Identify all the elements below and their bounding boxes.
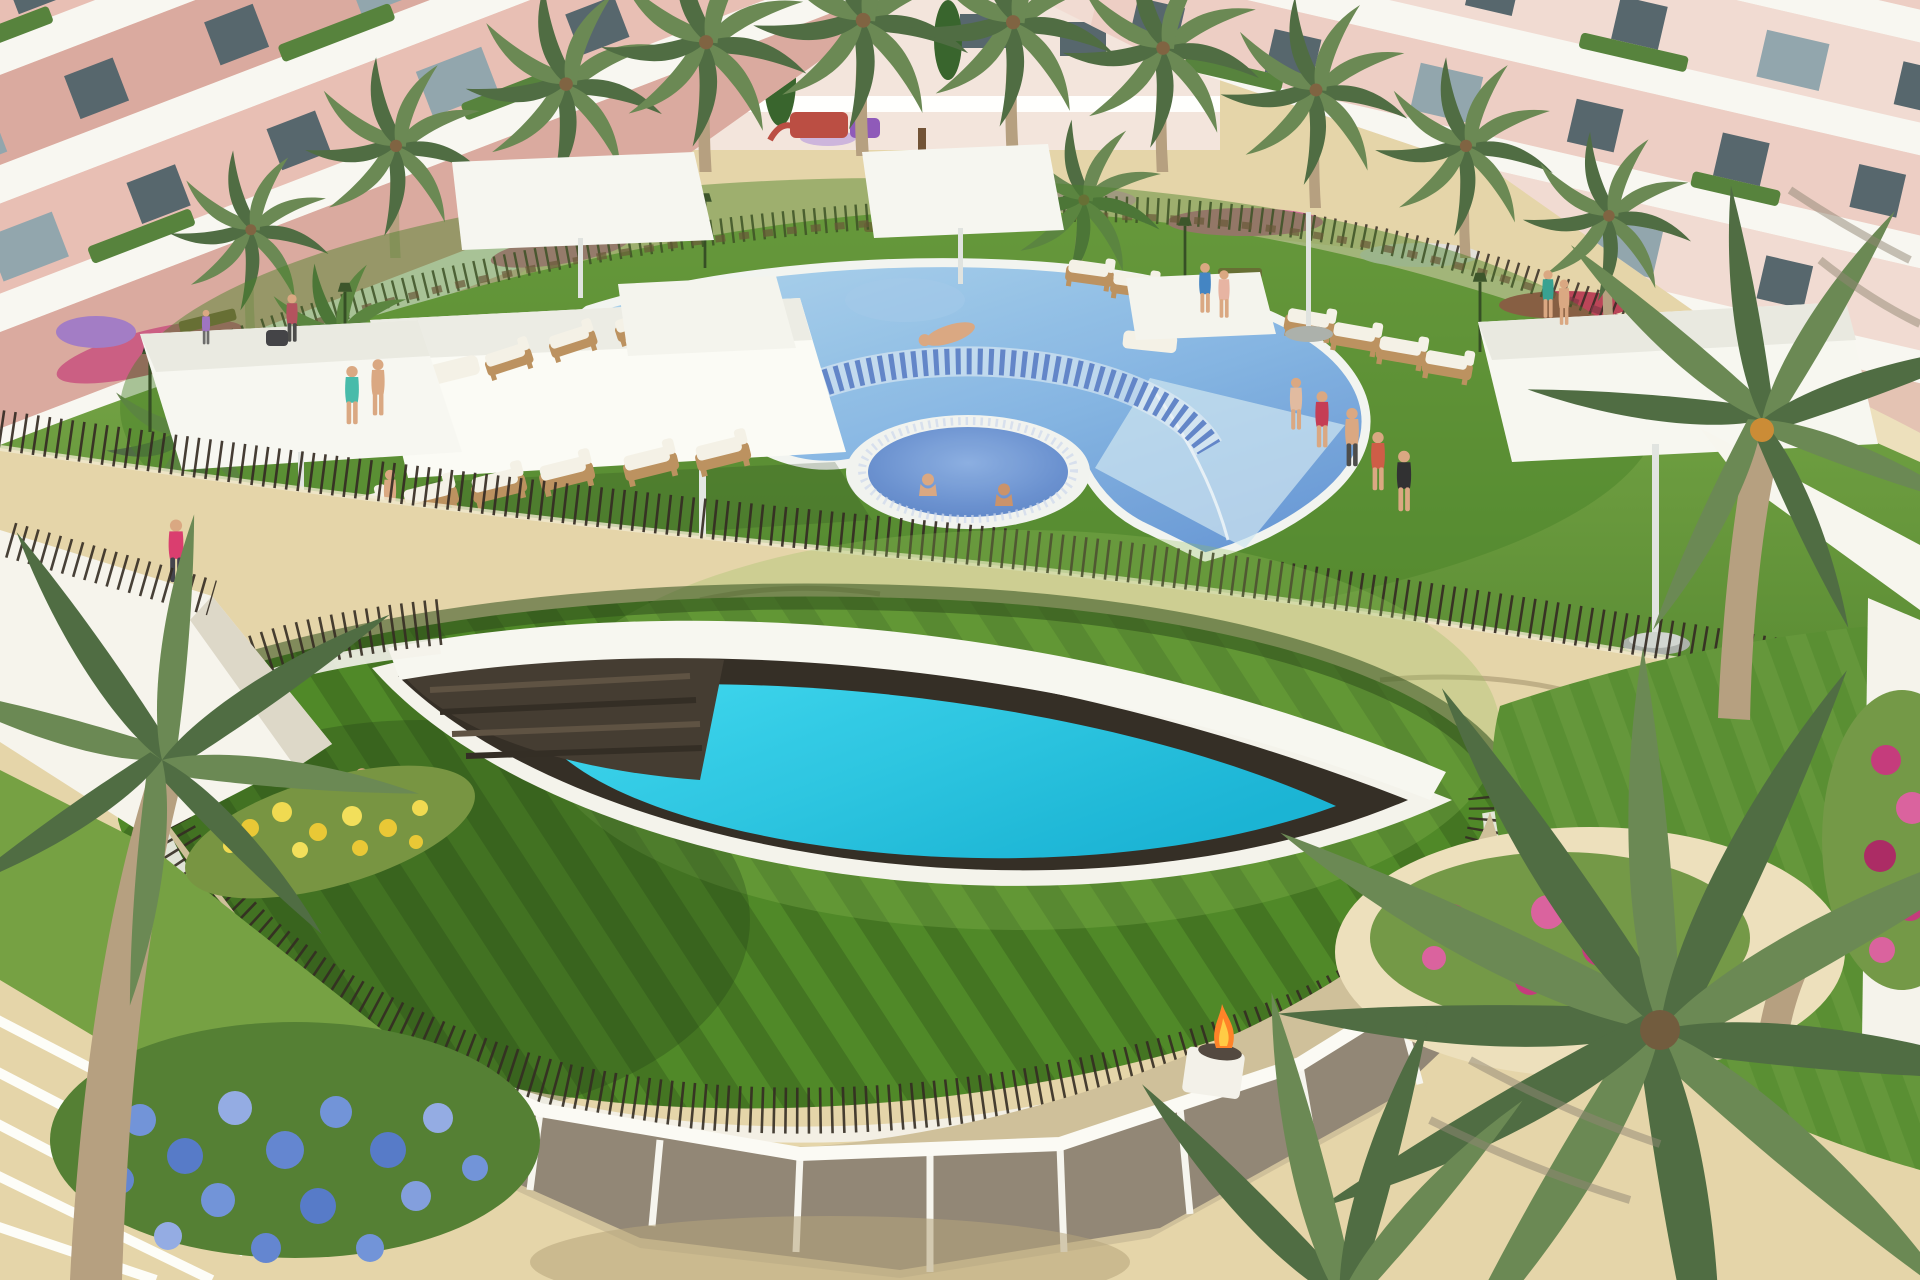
render-canvas [0,0,1920,1280]
resort-render [0,0,1920,1280]
sunlight-wash [0,0,1920,1280]
